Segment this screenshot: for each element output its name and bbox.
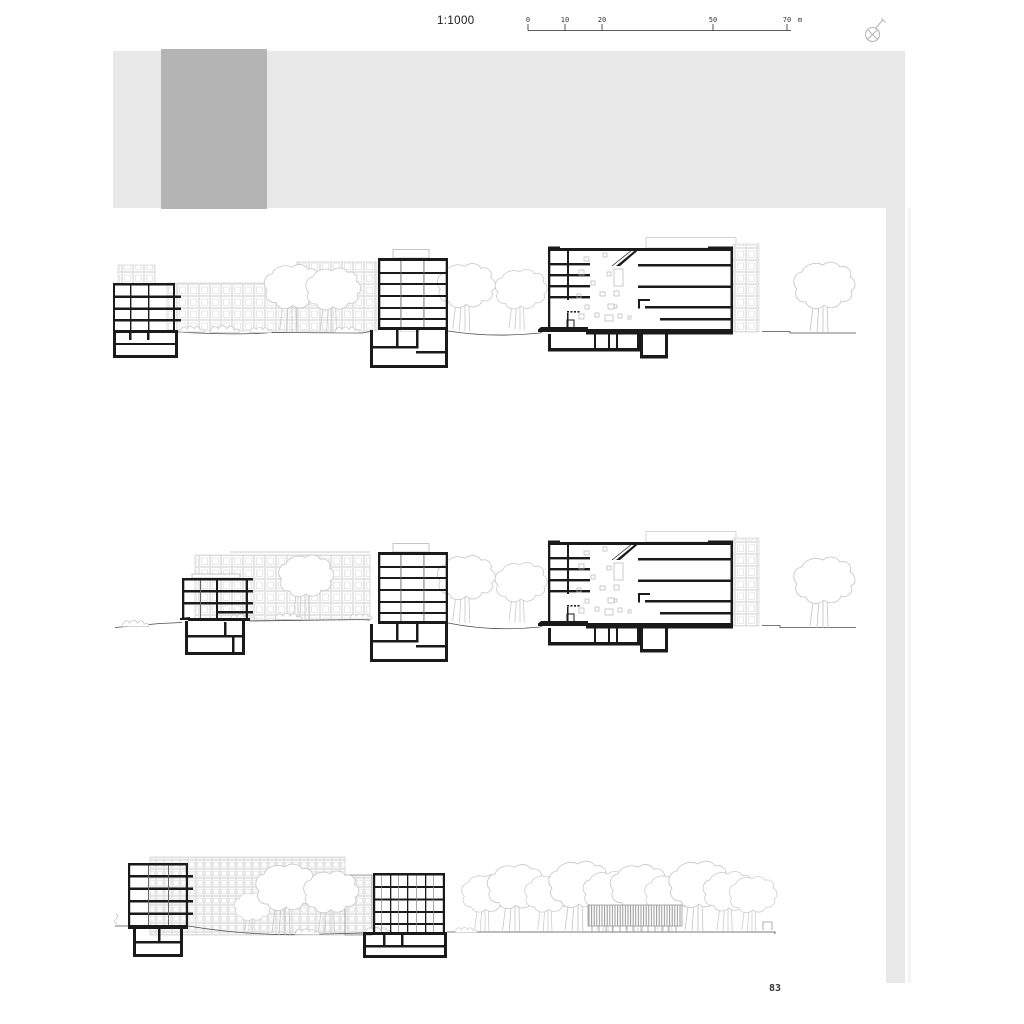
masthead-accent-block [161, 49, 267, 209]
drafting-pen-icon [856, 10, 892, 46]
document-page: 1:1000 0 10 20 50 70 m [0, 0, 1024, 1024]
section-drawing-row-2 [100, 531, 870, 671]
page-number: 83 [760, 983, 790, 994]
scale-tick-0: 0 [526, 16, 530, 24]
scale-unit-label: m [798, 16, 802, 24]
kiosk-outline [763, 922, 772, 930]
scale-tick-10: 10 [561, 16, 569, 24]
scale-tick-20: 20 [598, 16, 606, 24]
scale-tick-70: 70 [783, 16, 791, 24]
right-margin-strip-faint [908, 208, 911, 983]
section-drawing-row-1 [100, 236, 870, 376]
right-margin-strip [886, 208, 905, 983]
scale-tick-50: 50 [709, 16, 717, 24]
building-section-middle [363, 873, 447, 958]
building-section-tower [370, 544, 448, 663]
scale-bar: 0 10 20 50 70 m [522, 13, 812, 39]
building-section-tower [370, 250, 448, 369]
drawing-scale-label: 1:1000 [437, 15, 475, 27]
building-section-complex [538, 238, 759, 359]
building-section-complex [538, 532, 759, 653]
section-drawing-row-3 [100, 851, 800, 971]
